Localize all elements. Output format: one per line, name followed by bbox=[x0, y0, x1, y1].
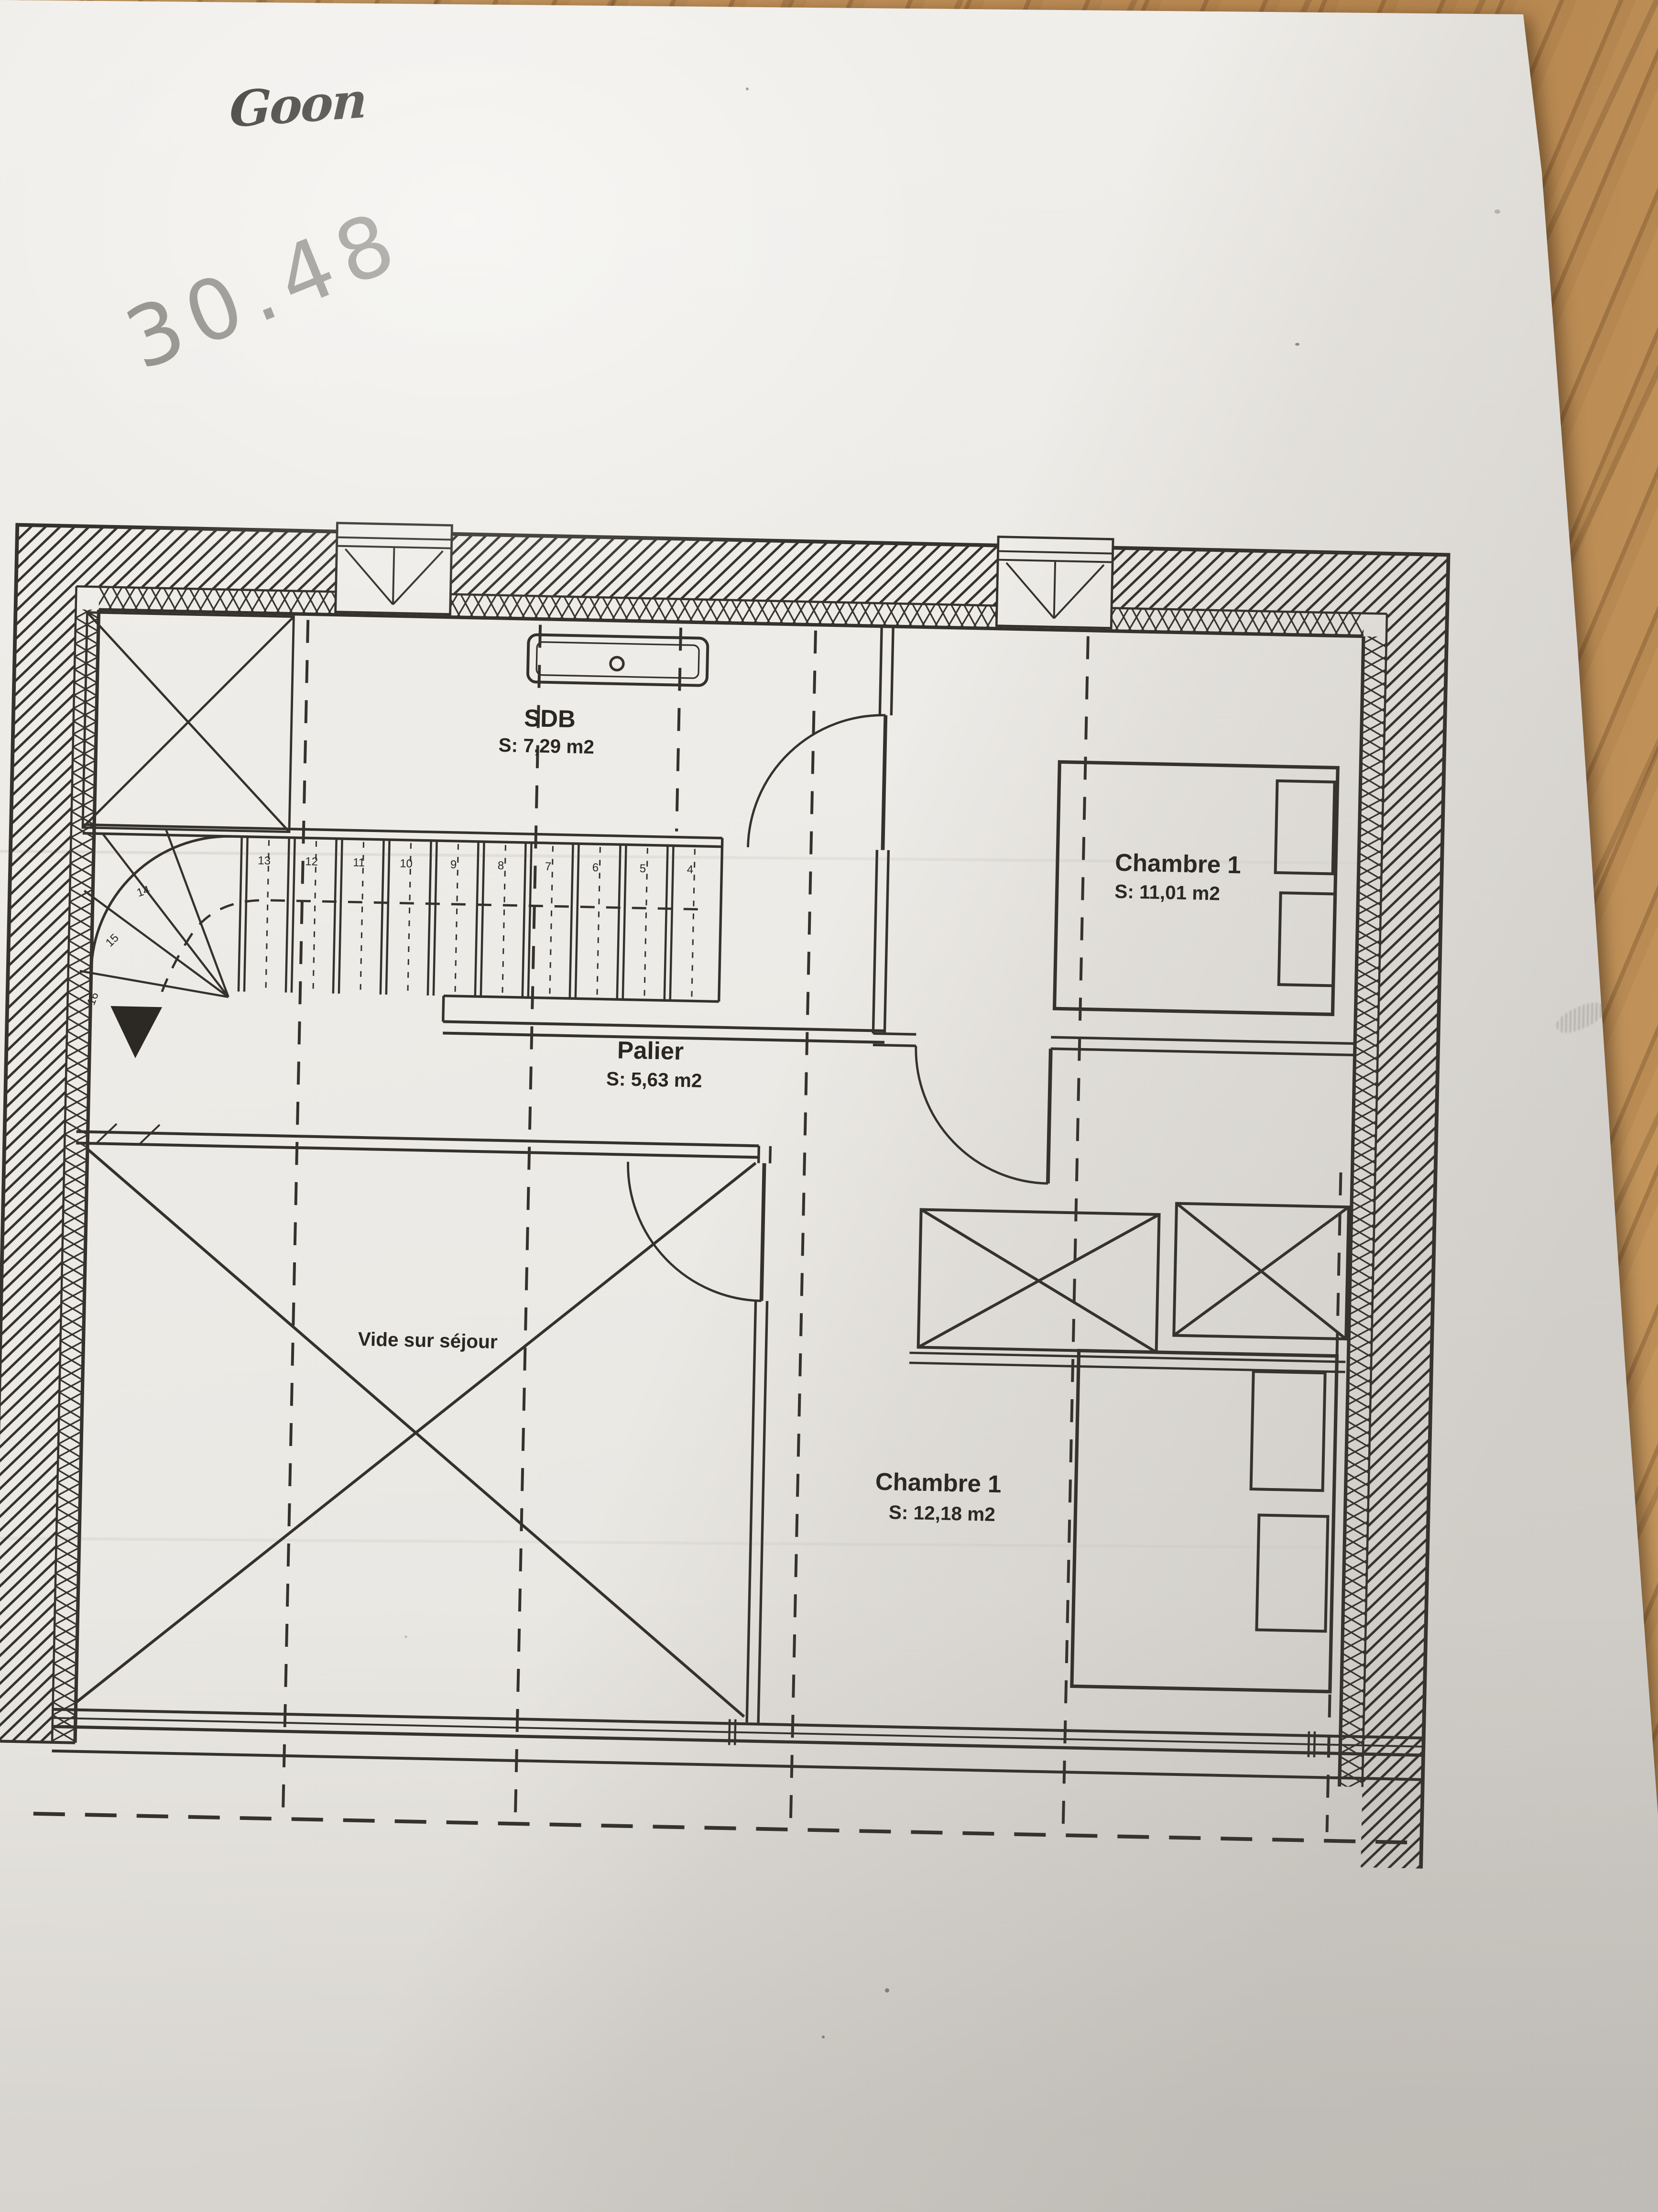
wall-vide-chambre bbox=[747, 1146, 770, 1722]
dust-speck bbox=[885, 1988, 889, 1993]
dust-speck bbox=[822, 2036, 825, 2038]
dashed-guide-lines bbox=[283, 620, 1352, 1832]
room-label-chambre1-bottom: Chambre 1 bbox=[875, 1468, 1002, 1498]
stair-direction-arrow bbox=[109, 1006, 162, 1059]
door-leaf-sdb bbox=[883, 715, 885, 850]
handwritten-name: Goon bbox=[229, 73, 367, 140]
staircase: 13 12 11 10 9 8 7 6 5 4 14 15 16 bbox=[78, 825, 889, 1074]
room-label-chambre1-top: Chambre 1 bbox=[1115, 849, 1242, 879]
floor-plan: 13 12 11 10 9 8 7 6 5 4 14 15 16 bbox=[0, 513, 1460, 1909]
dust-speck bbox=[1295, 343, 1299, 346]
stair-step-number: 8 bbox=[498, 859, 504, 872]
door-leaf-chambre1-bottom bbox=[762, 1163, 764, 1301]
shaft-cross bbox=[83, 613, 294, 832]
pillow bbox=[1251, 1371, 1325, 1490]
stair-step-number: 11 bbox=[353, 856, 365, 869]
pencil-smudge bbox=[1553, 997, 1609, 1038]
room-label-sdb: SDB bbox=[524, 704, 576, 733]
void-over-living-room bbox=[64, 1123, 770, 1722]
stair-step-number: 12 bbox=[305, 855, 318, 868]
closet-cross-right bbox=[1174, 1204, 1349, 1339]
dust-speck bbox=[1494, 209, 1500, 214]
paper-sheet: Goon 30.48 bbox=[0, 0, 1658, 2212]
exterior-walls bbox=[0, 525, 1449, 1869]
room-area-palier: S: 5,63 m2 bbox=[606, 1068, 702, 1092]
pillow bbox=[1279, 893, 1335, 986]
stair-step-number: 15 bbox=[103, 931, 121, 950]
room-label-vide-sur-sejour: Vide sur séjour bbox=[358, 1328, 498, 1353]
door-arc-chambre1-top bbox=[913, 1046, 1051, 1183]
stair-step-number: 5 bbox=[640, 862, 646, 875]
stair-step-number: 13 bbox=[258, 854, 271, 867]
pillow bbox=[1276, 781, 1335, 874]
door-arc-sdb bbox=[748, 712, 885, 850]
stair-handrail-arc bbox=[91, 833, 232, 974]
stair-step-number: 9 bbox=[450, 858, 457, 871]
stair-step-number: 4 bbox=[687, 863, 694, 876]
room-area-chambre1-bottom: S: 12,18 m2 bbox=[888, 1501, 995, 1525]
partition-sdb bbox=[744, 624, 893, 1034]
void-cross bbox=[76, 1149, 756, 1717]
room-label-palier: Palier bbox=[617, 1036, 684, 1065]
room-area-sdb: S: 7,29 m2 bbox=[498, 734, 594, 758]
stair-step-number: 7 bbox=[545, 860, 552, 873]
stair-step-number: 10 bbox=[400, 857, 413, 871]
pillow bbox=[1256, 1515, 1328, 1631]
door-arc-chambre1-bottom bbox=[625, 1162, 764, 1301]
bed-chambre1-bottom bbox=[1072, 1351, 1337, 1692]
handwritten-number: 30.48 bbox=[113, 190, 417, 389]
door-leaf-chambre1-top bbox=[1048, 1049, 1051, 1183]
dust-speck bbox=[746, 88, 749, 90]
dust-speck bbox=[404, 1635, 407, 1638]
photo-of-floor-plan: Goon 30.48 bbox=[0, 0, 1658, 2212]
room-area-chambre1-top: S: 11,01 m2 bbox=[1114, 880, 1221, 905]
stair-step-number: 6 bbox=[592, 861, 599, 874]
window-top-right bbox=[996, 537, 1113, 628]
stair-step-number: 14 bbox=[135, 883, 152, 899]
wall-chambre1-top bbox=[870, 1033, 1355, 1190]
bottom-railing-band bbox=[33, 1705, 1424, 1843]
closet-cross-left bbox=[918, 1210, 1159, 1352]
roof-height-dashed-line bbox=[33, 1814, 1421, 1843]
window-top-left bbox=[336, 523, 452, 614]
